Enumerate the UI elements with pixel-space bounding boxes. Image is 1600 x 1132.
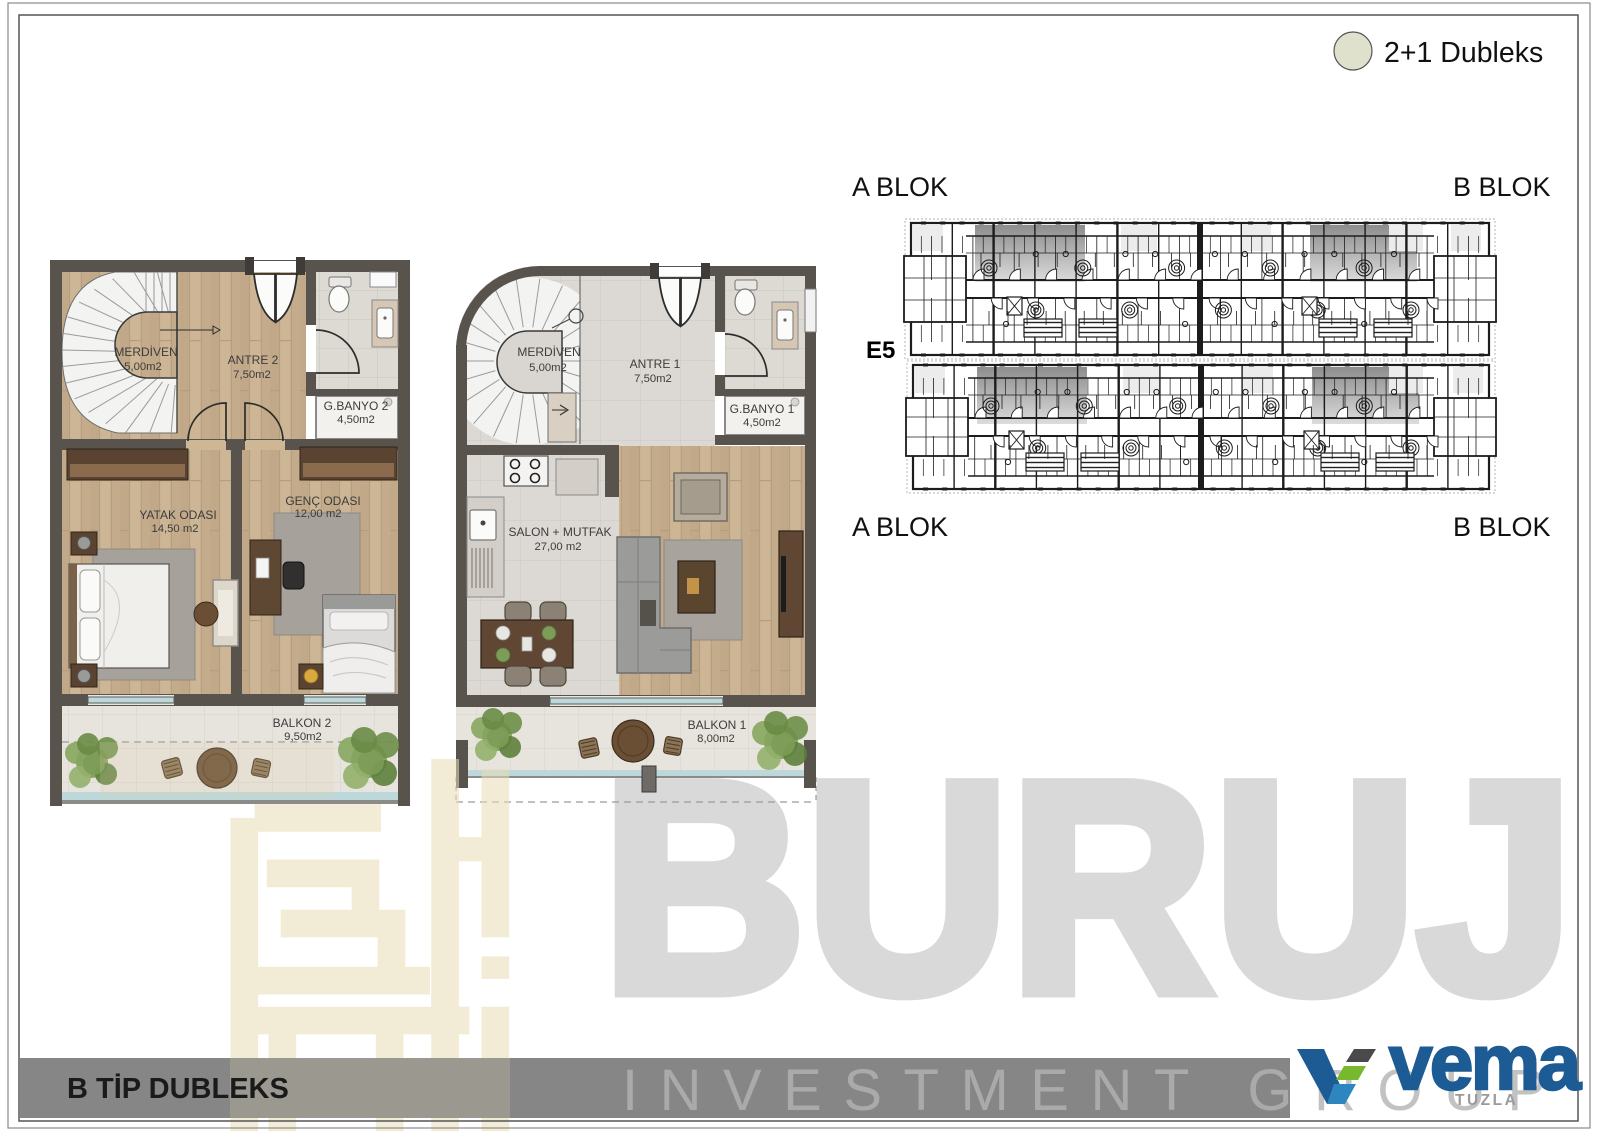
svg-text:7,50m2: 7,50m2 xyxy=(233,369,271,381)
svg-text:BALKON 1: BALKON 1 xyxy=(688,718,747,732)
svg-text:MERDİVEN: MERDİVEN xyxy=(517,345,580,359)
svg-text:12,00 m2: 12,00 m2 xyxy=(294,508,341,520)
svg-text:YATAK ODASI: YATAK ODASI xyxy=(139,508,216,522)
svg-text:ANTRE 2: ANTRE 2 xyxy=(228,353,279,367)
svg-text:5,00m2: 5,00m2 xyxy=(529,362,567,374)
svg-text:14,50 m2: 14,50 m2 xyxy=(151,523,198,535)
svg-text:G.BANYO 1: G.BANYO 1 xyxy=(730,402,795,416)
svg-text:5,00m2: 5,00m2 xyxy=(124,361,162,373)
svg-text:7,50m2: 7,50m2 xyxy=(634,373,672,385)
svg-text:9,50m2: 9,50m2 xyxy=(284,731,322,743)
svg-text:G.BANYO 2: G.BANYO 2 xyxy=(324,399,389,413)
svg-text:BALKON 2: BALKON 2 xyxy=(273,716,332,730)
svg-text:8,00m2: 8,00m2 xyxy=(697,733,735,745)
svg-text:SALON + MUTFAK: SALON + MUTFAK xyxy=(508,525,611,539)
svg-text:27,00 m2: 27,00 m2 xyxy=(534,541,581,553)
svg-text:2+1 Dubleks: 2+1 Dubleks xyxy=(1384,37,1543,69)
svg-text:E5: E5 xyxy=(866,337,895,364)
svg-text:4,50m2: 4,50m2 xyxy=(743,417,781,429)
svg-text:4,50m2: 4,50m2 xyxy=(337,414,375,426)
svg-text:GENÇ ODASI: GENÇ ODASI xyxy=(285,494,360,508)
svg-text:MERDİVEN: MERDİVEN xyxy=(114,345,177,359)
svg-text:B TİP DUBLEKS: B TİP DUBLEKS xyxy=(67,1073,289,1105)
svg-text:B BLOK: B BLOK xyxy=(1453,512,1551,542)
svg-text:TUZLA: TUZLA xyxy=(1455,1092,1518,1109)
svg-text:A BLOK: A BLOK xyxy=(852,172,948,202)
svg-text:A BLOK: A BLOK xyxy=(852,512,948,542)
svg-text:B BLOK: B BLOK xyxy=(1453,172,1551,202)
svg-text:ANTRE 1: ANTRE 1 xyxy=(630,357,681,371)
